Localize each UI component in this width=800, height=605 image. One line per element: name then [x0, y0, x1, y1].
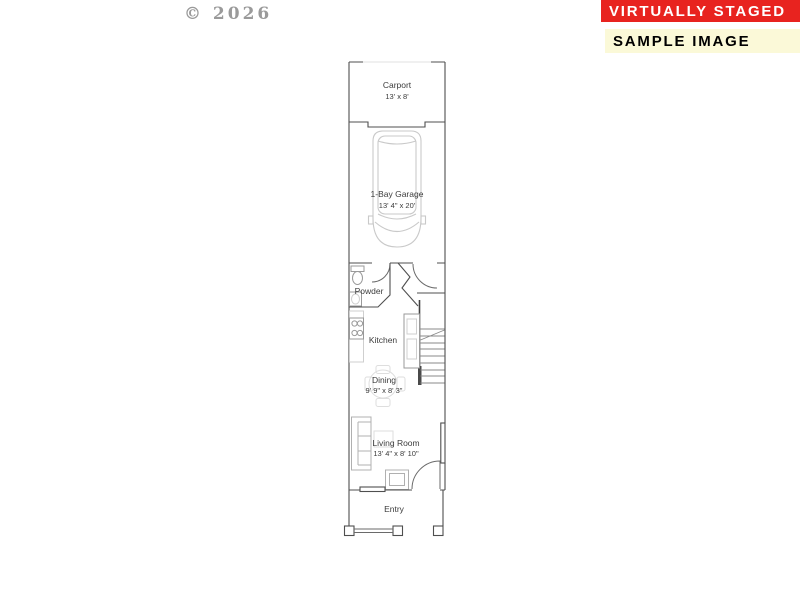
powder-room: [349, 263, 390, 307]
stove-icon: [350, 318, 364, 339]
sofa-icon: [352, 417, 372, 470]
carport-dims: 13' x 8': [385, 92, 409, 101]
porch-post: [345, 526, 355, 536]
living-room-dims: 13' 4" x 8' 10": [373, 449, 419, 458]
powder-door-arc: [372, 264, 390, 282]
powder-label: Powder: [355, 286, 384, 296]
kitchen-counter: [350, 311, 364, 362]
staircase: [418, 300, 445, 385]
porch-post: [434, 526, 444, 536]
front-door-arc: [412, 461, 440, 489]
kitchen-island: [404, 314, 420, 368]
carport-label: Carport: [383, 80, 412, 90]
dining-dims: 9' 9" x 8' 3": [366, 386, 403, 395]
kitchen-label: Kitchen: [369, 335, 398, 345]
entry-label: Entry: [384, 504, 405, 514]
toilet-icon: [351, 266, 364, 285]
front-window: [360, 487, 385, 492]
floor-plan: Carport 13' x 8' 1-Bay Garage 13' 4" x 2…: [0, 0, 800, 605]
garage-entry-door-arc: [413, 264, 437, 288]
floor-plan-drawing: Carport 13' x 8' 1-Bay Garage 13' 4" x 2…: [0, 0, 800, 600]
armchair-icon: [386, 470, 409, 490]
dining-label: Dining: [372, 375, 396, 385]
porch-railing: [354, 529, 393, 533]
porch-post: [393, 526, 403, 536]
garage-dims: 13' 4" x 20': [379, 201, 416, 210]
garage-label: 1-Bay Garage: [371, 189, 424, 199]
hall-walls: [398, 263, 445, 306]
living-room-window: [441, 423, 445, 463]
listing-photo: { "copyright": "© 2026", "badges": { "vi…: [0, 0, 800, 600]
living-room-label: Living Room: [372, 438, 419, 448]
